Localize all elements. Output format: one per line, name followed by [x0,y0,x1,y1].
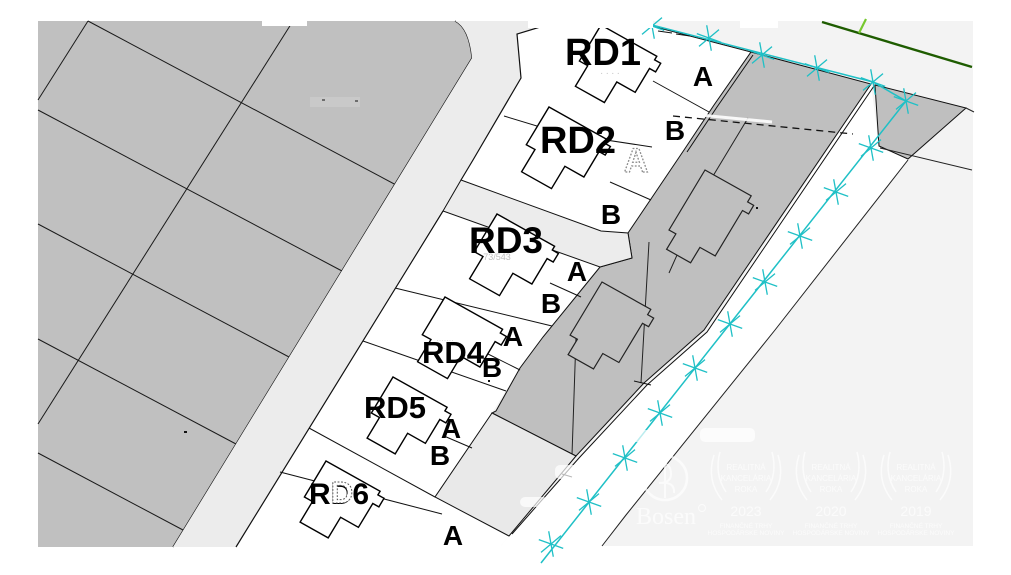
svg-text:2023: 2023 [730,503,761,519]
svg-text:HOSPODÁRSKE NOVINY: HOSPODÁRSKE NOVINY [708,528,786,537]
svg-text:B: B [482,352,502,383]
svg-text:KANCELÁRIA: KANCELÁRIA [891,474,942,483]
svg-text:D: D [331,475,353,510]
svg-text:B: B [601,199,621,230]
svg-text:ROKA: ROKA [905,485,928,494]
svg-text:HOSPODÁRSKE NOVINY: HOSPODÁRSKE NOVINY [878,528,956,537]
svg-text:RD2: RD2 [540,120,616,162]
svg-text:A: A [443,520,463,551]
svg-text:B: B [430,440,450,471]
svg-text:FINANČNÉ TRHY: FINANČNÉ TRHY [720,521,773,530]
svg-text:ROKA: ROKA [735,485,758,494]
svg-text:2020: 2020 [815,503,846,519]
svg-text:A: A [624,142,649,180]
svg-text:RD5: RD5 [364,390,426,425]
svg-text:KANCELÁRIA: KANCELÁRIA [721,474,772,483]
svg-text:REALITNÁ: REALITNÁ [811,463,851,472]
svg-text:REALITNÁ: REALITNÁ [896,463,936,472]
svg-text:B: B [541,288,561,319]
svg-text:.......: ....... [436,333,454,343]
svg-text:A: A [503,321,523,352]
svg-text:FINANČNÉ TRHY: FINANČNÉ TRHY [890,521,943,530]
svg-text:ROKA: ROKA [820,485,843,494]
svg-text:B: B [665,115,685,146]
svg-text:A: A [693,61,713,92]
svg-text:2019: 2019 [900,503,931,519]
svg-text:HOSPODÁRSKE NOVINY: HOSPODÁRSKE NOVINY [793,528,871,537]
svg-text:A: A [567,256,587,287]
svg-text:73/543: 73/543 [483,252,511,262]
svg-text:. . . .: . . . . [600,66,619,77]
svg-text:Bosen: Bosen [636,504,696,530]
svg-text:KANCELÁRIA: KANCELÁRIA [806,474,857,483]
svg-text:FINANČNÉ TRHY: FINANČNÉ TRHY [805,521,858,530]
svg-text:REALITNÁ: REALITNÁ [726,463,766,472]
